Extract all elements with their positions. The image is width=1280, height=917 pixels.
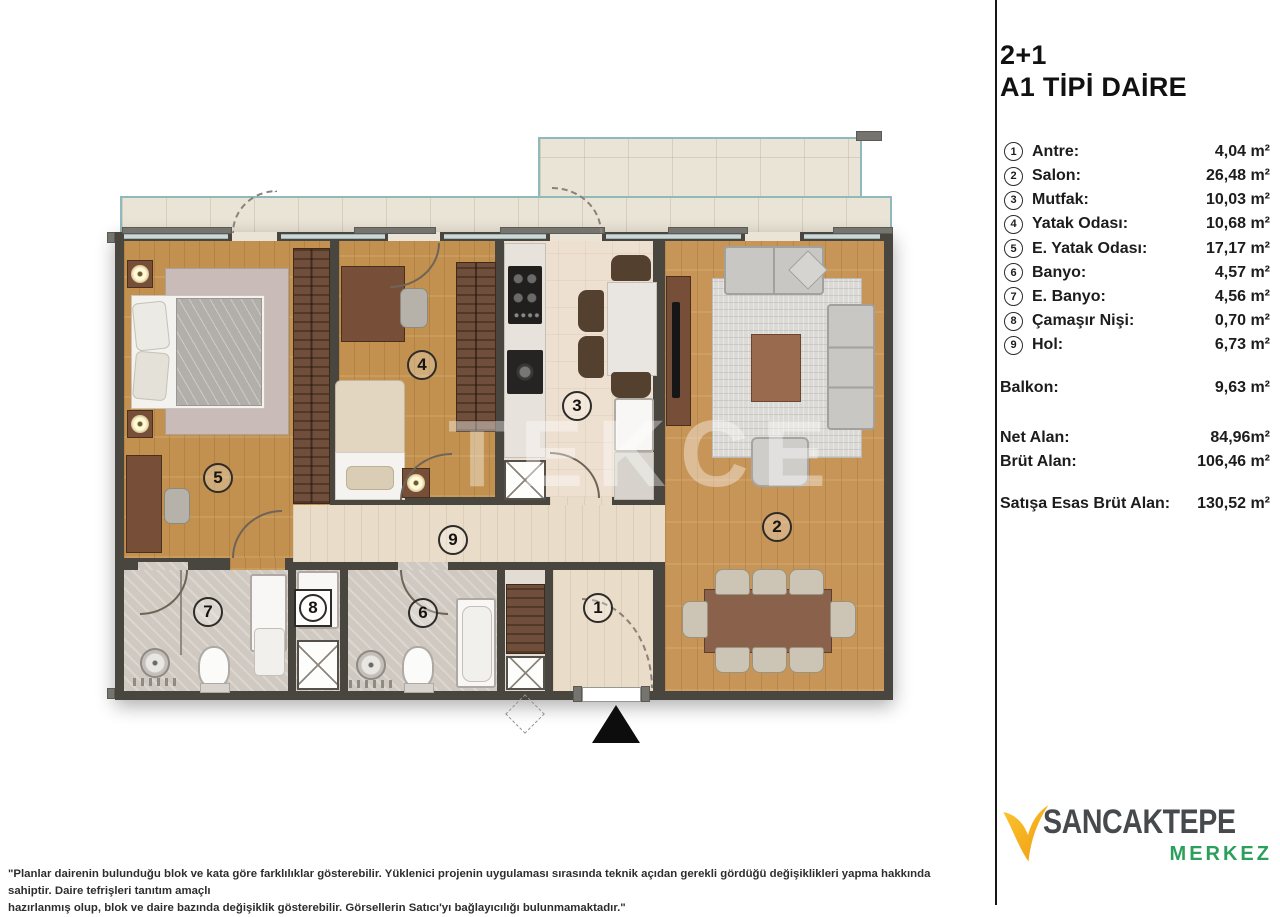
- entrance-door: [582, 687, 641, 702]
- window: [281, 234, 385, 239]
- marker-number: 5: [213, 468, 222, 488]
- room-number-badge: 4: [1004, 215, 1023, 234]
- disclaimer-text: "Planlar dairenin bulunduğu blok ve kata…: [8, 866, 960, 917]
- pillow: [346, 466, 394, 490]
- shower-tray: [254, 628, 285, 676]
- oven: [507, 350, 543, 394]
- toilet: [402, 646, 434, 688]
- room-number-badge: 3: [1004, 191, 1023, 210]
- total-area: 84,96m²: [1210, 429, 1270, 447]
- brand-logo: SANCAKTEPE MERKEZ: [1000, 778, 1272, 890]
- shaft-icon: [506, 656, 545, 690]
- room-list-row: 1Antre:4,04 m²: [1000, 140, 1270, 164]
- door-jamb: [573, 686, 582, 702]
- room-number-badge: 6: [1004, 263, 1023, 282]
- lamp-icon: [131, 415, 149, 433]
- unit-type: 2+1: [1000, 40, 1270, 72]
- balcony-corner-block: [856, 131, 882, 141]
- room-label: Banyo:: [1032, 264, 1215, 282]
- room-area: 0,70 m²: [1215, 312, 1270, 330]
- room-list-row: 8Çamaşır Nişi:0,70 m²: [1000, 309, 1270, 333]
- room-marker-mutfak: 3: [562, 391, 592, 421]
- room-number-badge: 9: [1004, 336, 1023, 355]
- marker-number: 2: [772, 517, 781, 537]
- room-area: 26,48 m²: [1206, 167, 1270, 185]
- info-panel: 2+1 A1 TİPİ DAİRE 1Antre:4,04 m² 2Salon:…: [1000, 40, 1270, 516]
- total-label: Net Alan:: [1000, 429, 1210, 447]
- room-number-badge: 8: [1004, 312, 1023, 331]
- chair: [578, 336, 604, 378]
- shaft-icon: [297, 640, 339, 690]
- sales-label: Satışa Esas Brüt Alan:: [1000, 495, 1191, 513]
- totals-block: Net Alan:84,96m² Brüt Alan:106,46 m²: [1000, 426, 1270, 474]
- chair: [715, 647, 750, 673]
- sink: [140, 648, 170, 678]
- room-marker-camasir-nisi: 8: [294, 589, 332, 627]
- cooktop: [508, 266, 542, 324]
- brut-alan-row: Brüt Alan:106,46 m²: [1000, 450, 1270, 474]
- toilet: [198, 646, 230, 688]
- chair: [611, 372, 651, 398]
- wall-nub: [107, 688, 115, 699]
- chair: [830, 601, 856, 638]
- window: [804, 234, 880, 239]
- pillow: [132, 351, 170, 402]
- room-label: Hol:: [1032, 336, 1215, 354]
- window: [606, 234, 741, 239]
- sales-area: 130,52 m²: [1197, 495, 1270, 513]
- room-list-row: 7E. Banyo:4,56 m²: [1000, 285, 1270, 309]
- room-area: 10,03 m²: [1206, 191, 1270, 209]
- room-label: Yatak Odası:: [1032, 215, 1206, 233]
- tv-icon: [672, 302, 680, 398]
- room-area: 4,57 m²: [1215, 264, 1270, 282]
- shaft-diamond: [505, 694, 545, 734]
- room-number-badge: 5: [1004, 239, 1023, 258]
- entrance-arrow-icon: [592, 705, 640, 743]
- chair: [682, 601, 708, 638]
- marker-number: 1: [593, 598, 602, 618]
- marker-circle: 8: [299, 594, 327, 622]
- lamp-icon: [131, 265, 149, 283]
- room-label: Mutfak:: [1032, 191, 1206, 209]
- room-label: Çamaşır Nişi:: [1032, 312, 1215, 330]
- room-marker-e-yatak-odasi: 5: [203, 463, 233, 493]
- room-marker-hol: 9: [438, 525, 468, 555]
- watermark: TEKCE: [448, 400, 840, 509]
- chair: [752, 569, 787, 595]
- room-label: E. Yatak Odası:: [1032, 240, 1206, 258]
- desk-chair: [164, 488, 190, 524]
- marker-number: 9: [448, 530, 457, 550]
- room-area: 6,73 m²: [1215, 336, 1270, 354]
- desk: [126, 455, 162, 553]
- door-opening-ebanyo: [138, 562, 188, 570]
- floorplan-page: { "panel": { "title_line1": "2+1", "titl…: [0, 0, 1280, 905]
- door-opening-bedroom5: [230, 558, 285, 570]
- room-number-badge: 2: [1004, 167, 1023, 186]
- room-number-badge: 1: [1004, 142, 1023, 161]
- single-bed: [335, 380, 405, 460]
- room-area: 17,17 m²: [1206, 240, 1270, 258]
- marker-number: 3: [572, 396, 581, 416]
- room-area: 4,56 m²: [1215, 288, 1270, 306]
- balcony-door-opening-4: [745, 232, 800, 241]
- balkon-label: Balkon:: [1000, 379, 1215, 397]
- room-marker-e-banyo: 7: [193, 597, 223, 627]
- shaft-cabinet: [506, 584, 545, 654]
- chair: [715, 569, 750, 595]
- window-lintel: [668, 227, 748, 234]
- logo-name: SANCAKTEPE: [1043, 803, 1236, 842]
- marker-number: 4: [417, 355, 426, 375]
- floor-plan: TEKCE 1 2 3 4 5 6 7 8 9: [0, 0, 995, 905]
- room-list-row: 5E. Yatak Odası:17,17 m²: [1000, 236, 1270, 260]
- room-list-row: 4Yatak Odası:10,68 m²: [1000, 212, 1270, 236]
- toilet-tank: [404, 683, 434, 693]
- balkon-area: 9,63 m²: [1215, 379, 1270, 397]
- room-marker-banyo: 6: [408, 598, 438, 628]
- marker-number: 6: [418, 603, 427, 623]
- room-marker-salon: 2: [762, 512, 792, 542]
- net-alan-row: Net Alan:84,96m²: [1000, 426, 1270, 450]
- balkon-row: Balkon: 9,63 m²: [1000, 375, 1270, 399]
- sales-area-row: Satışa Esas Brüt Alan: 130,52 m²: [1000, 492, 1270, 516]
- room-area: 10,68 m²: [1206, 215, 1270, 233]
- coffee-table: [751, 334, 801, 402]
- chair: [611, 255, 651, 281]
- balcony-upper-right: [538, 137, 862, 202]
- room-list-row: 6Banyo:4,57 m²: [1000, 261, 1270, 285]
- room-label: E. Banyo:: [1032, 288, 1215, 306]
- wall-nub: [107, 232, 115, 243]
- window-lintel: [833, 227, 893, 234]
- room-list-row: 9Hol:6,73 m²: [1000, 333, 1270, 357]
- total-area: 106,46 m²: [1197, 453, 1270, 471]
- bathtub-inner: [462, 606, 492, 682]
- dining-table-kitchen: [607, 282, 657, 376]
- room-marker-antre: 1: [583, 593, 613, 623]
- room-list-row: 2Salon:26,48 m²: [1000, 164, 1270, 188]
- room-label: Antre:: [1032, 143, 1215, 161]
- balcony-door-opening-1: [232, 232, 277, 241]
- desk-chair: [400, 288, 428, 328]
- pillow: [132, 300, 171, 351]
- toilet-tank: [200, 683, 230, 693]
- room-marker-yatak-odasi: 4: [407, 350, 437, 380]
- door-jamb: [641, 686, 650, 702]
- marker-number: 7: [203, 602, 212, 622]
- sink-tap: [349, 680, 393, 688]
- logo-text: SANCAKTEPE MERKEZ: [1043, 803, 1272, 866]
- room-label: Salon:: [1032, 167, 1206, 185]
- marker-number: 8: [308, 598, 317, 618]
- wardrobe: [293, 248, 330, 504]
- door-opening-banyo: [398, 562, 448, 570]
- window: [124, 234, 228, 239]
- sink: [356, 650, 386, 680]
- unit-name: A1 TİPİ DAİRE: [1000, 72, 1270, 104]
- dining-table: [704, 589, 832, 653]
- chair: [752, 647, 787, 673]
- room-list-row: 3Mutfak:10,03 m²: [1000, 188, 1270, 212]
- chair: [789, 647, 824, 673]
- panel-divider: [995, 0, 997, 905]
- chair: [578, 290, 604, 332]
- room-area: 4,04 m²: [1215, 143, 1270, 161]
- chair: [789, 569, 824, 595]
- floor-hol: [293, 505, 665, 562]
- logo-subtitle: MERKEZ: [1170, 843, 1272, 866]
- sink-tap: [133, 678, 177, 686]
- window: [444, 234, 546, 239]
- total-label: Brüt Alan:: [1000, 453, 1197, 471]
- room-number-badge: 7: [1004, 287, 1023, 306]
- room-list: 1Antre:4,04 m² 2Salon:26,48 m² 3Mutfak:1…: [1000, 140, 1270, 358]
- window-lintel: [354, 227, 436, 234]
- window-lintel: [122, 227, 232, 234]
- bed-blanket: [176, 298, 262, 406]
